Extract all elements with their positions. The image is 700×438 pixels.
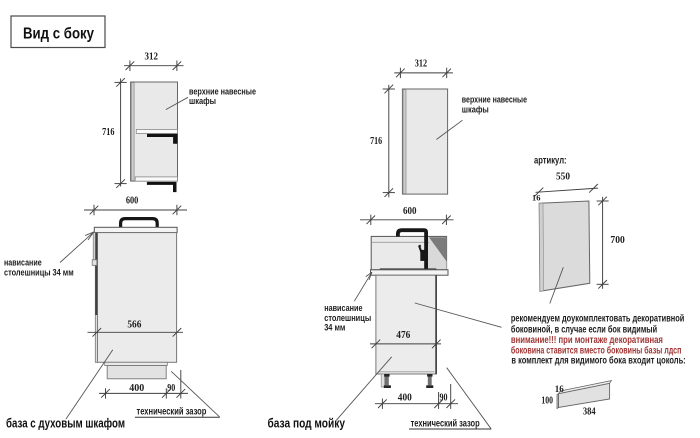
svg-text:столешницы 34 мм: столешницы 34 мм [4,267,74,277]
svg-text:384: 384 [583,406,596,417]
svg-text:566: 566 [127,320,141,331]
svg-text:база с духовым шкафом: база с духовым шкафом [6,417,125,431]
svg-text:в комплект для видимого бока в: в комплект для видимого бока входит цоко… [511,355,685,367]
svg-text:34 мм: 34 мм [324,322,345,332]
svg-text:технический зазор: технический зазор [411,417,480,429]
svg-text:шкафы: шкафы [189,96,216,106]
svg-text:Вид с боку: Вид с боку [23,25,94,42]
svg-text:312: 312 [145,51,159,62]
svg-text:100: 100 [541,396,553,407]
svg-text:рекомендуем доукомплектовать д: рекомендуем доукомплектовать декоративно… [511,313,684,324]
svg-text:технический зазор: технический зазор [137,406,207,418]
svg-text:600: 600 [403,206,417,217]
svg-text:артикул:: артикул: [534,156,567,167]
svg-text:база под мойку: база под мойку [268,417,346,431]
svg-text:716: 716 [102,127,114,138]
svg-text:700: 700 [610,235,624,246]
svg-text:нависание: нависание [4,257,42,267]
svg-text:боковина ставится вместо боков: боковина ставится вместо боковины базы л… [511,344,682,356]
svg-text:столешницы: столешницы [324,313,371,323]
svg-text:476: 476 [396,330,410,341]
svg-text:внимание!!! при монтаже декора: внимание!!! при монтаже декоративная [511,335,663,346]
svg-text:шкафы: шкафы [462,105,489,115]
svg-text:верхние навесные: верхние навесные [462,94,527,104]
svg-text:90: 90 [440,392,448,403]
svg-text:312: 312 [415,58,427,69]
svg-text:716: 716 [370,136,382,147]
svg-text:400: 400 [398,392,412,403]
svg-text:600: 600 [126,195,139,206]
svg-text:16: 16 [532,193,541,203]
svg-text:16: 16 [555,384,565,394]
svg-text:боковиной, в случае если бок в: боковиной, в случае если бок видимый [511,323,657,335]
svg-text:550: 550 [556,172,570,183]
svg-text:нависание: нависание [324,303,362,313]
svg-text:400: 400 [129,383,144,394]
svg-text:90: 90 [167,383,175,394]
